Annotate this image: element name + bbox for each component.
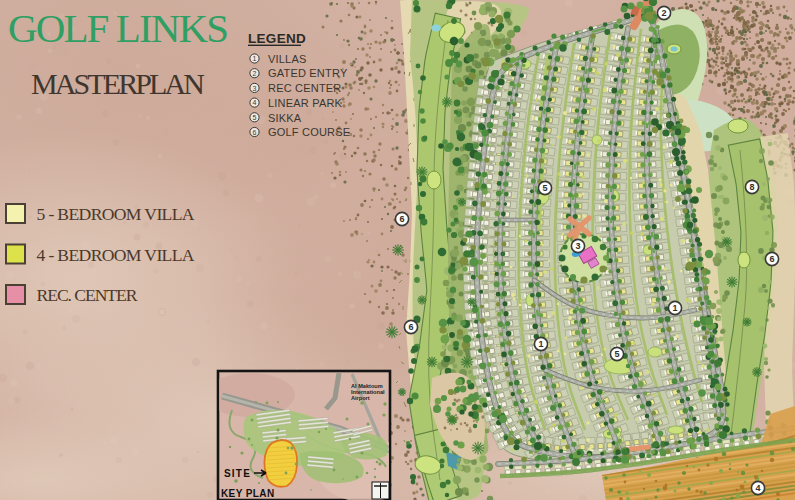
svg-text:3: 3 bbox=[575, 241, 580, 251]
svg-text:3: 3 bbox=[253, 85, 257, 92]
svg-text:4: 4 bbox=[253, 99, 257, 106]
svg-text:REC CENTER: REC CENTER bbox=[268, 82, 342, 94]
svg-text:4 - BEDROOM VILLA: 4 - BEDROOM VILLA bbox=[37, 245, 195, 265]
svg-text:VILLAS: VILLAS bbox=[268, 53, 307, 65]
svg-text:6: 6 bbox=[769, 254, 774, 264]
svg-text:SITE: SITE bbox=[224, 468, 251, 479]
svg-text:6: 6 bbox=[253, 129, 257, 136]
svg-text:5: 5 bbox=[614, 349, 619, 359]
svg-text:5: 5 bbox=[542, 183, 547, 193]
svg-text:5 - BEDROOM VILLA: 5 - BEDROOM VILLA bbox=[37, 204, 195, 224]
svg-text:5: 5 bbox=[253, 114, 257, 121]
svg-text:REC. CENTER: REC. CENTER bbox=[37, 285, 138, 305]
svg-text:6: 6 bbox=[408, 322, 413, 332]
svg-text:LINEAR PARK: LINEAR PARK bbox=[268, 97, 343, 109]
svg-text:2: 2 bbox=[253, 70, 257, 77]
svg-text:1: 1 bbox=[672, 303, 677, 313]
svg-text:1: 1 bbox=[538, 339, 543, 349]
svg-text:6: 6 bbox=[399, 214, 404, 224]
svg-text:SIKKA: SIKKA bbox=[268, 112, 302, 124]
svg-text:LEGEND: LEGEND bbox=[248, 31, 306, 46]
svg-text:GOLF LINKS: GOLF LINKS bbox=[8, 5, 229, 51]
svg-text:MASTERPLAN: MASTERPLAN bbox=[31, 67, 205, 100]
svg-text:GOLF COURSE: GOLF COURSE bbox=[268, 126, 350, 138]
svg-text:1: 1 bbox=[253, 55, 257, 62]
svg-text:8: 8 bbox=[749, 182, 754, 192]
svg-text:2: 2 bbox=[661, 8, 666, 18]
svg-text:4: 4 bbox=[755, 483, 760, 493]
svg-text:GATED ENTRY: GATED ENTRY bbox=[268, 67, 348, 79]
svg-text:Airport: Airport bbox=[351, 395, 370, 401]
svg-text:KEY PLAN: KEY PLAN bbox=[221, 488, 275, 499]
